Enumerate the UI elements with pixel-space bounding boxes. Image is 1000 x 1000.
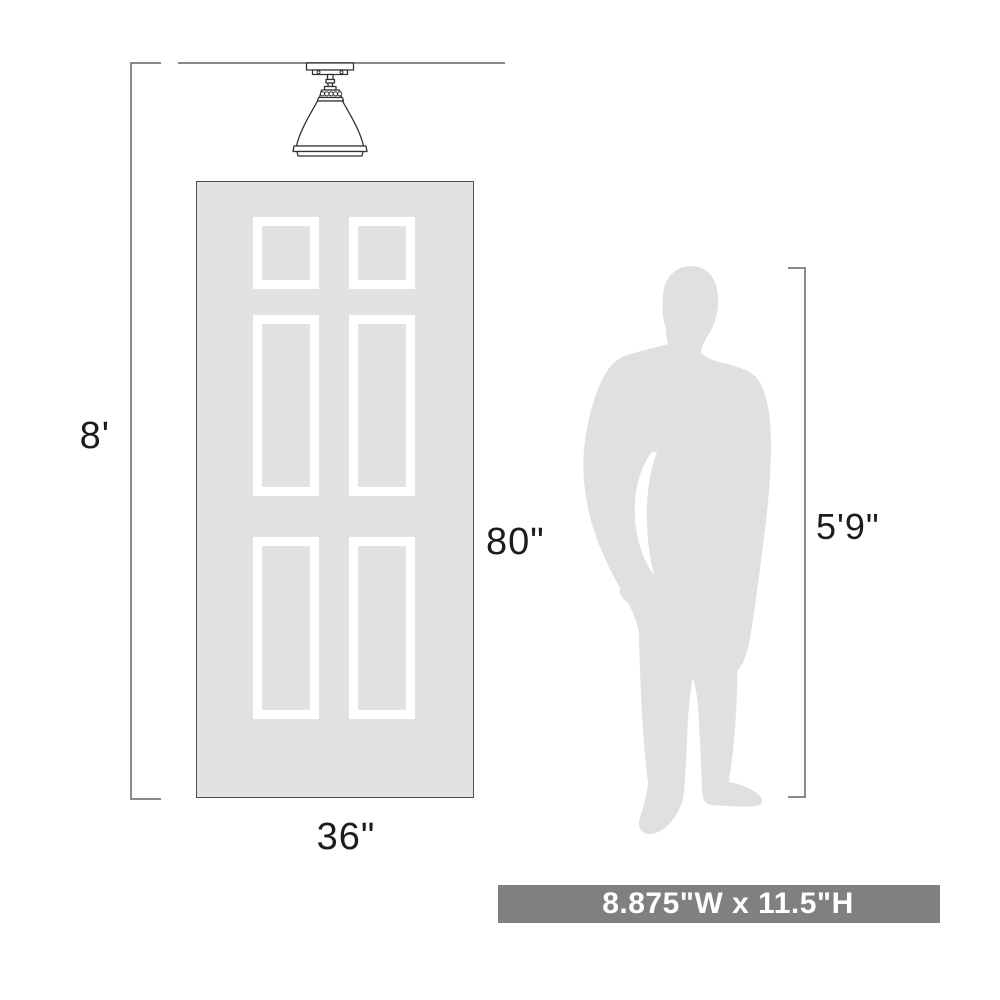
person-height-label: 5'9" (816, 508, 880, 546)
person-height-dimension-tick-top (788, 267, 806, 269)
size-banner: 8.875"W x 11.5"H (498, 885, 940, 923)
ceiling-height-dimension-line (130, 62, 132, 800)
door-height-label: 80" (486, 523, 545, 561)
ceiling-light-fixture-icon (280, 55, 390, 160)
ceiling-height-dimension-tick-top (130, 62, 161, 64)
door-panel (253, 217, 319, 289)
ceiling-height-dimension-tick-bottom (130, 798, 161, 800)
person-height-dimension-line (804, 267, 806, 798)
door-width-label: 36" (296, 818, 396, 856)
door-panel (349, 315, 415, 496)
male-silhouette-icon (575, 260, 785, 840)
ceiling-height-label: 8' (40, 417, 110, 455)
dimension-diagram: 8' 80" (0, 0, 1000, 1000)
door-panel (253, 315, 319, 496)
size-banner-label: 8.875"W x 11.5"H (602, 887, 854, 920)
door-panel (253, 537, 319, 719)
door-panel (349, 217, 415, 289)
door-panel (349, 537, 415, 719)
person-height-dimension-tick-bottom (788, 796, 806, 798)
door-illustration (196, 181, 474, 798)
